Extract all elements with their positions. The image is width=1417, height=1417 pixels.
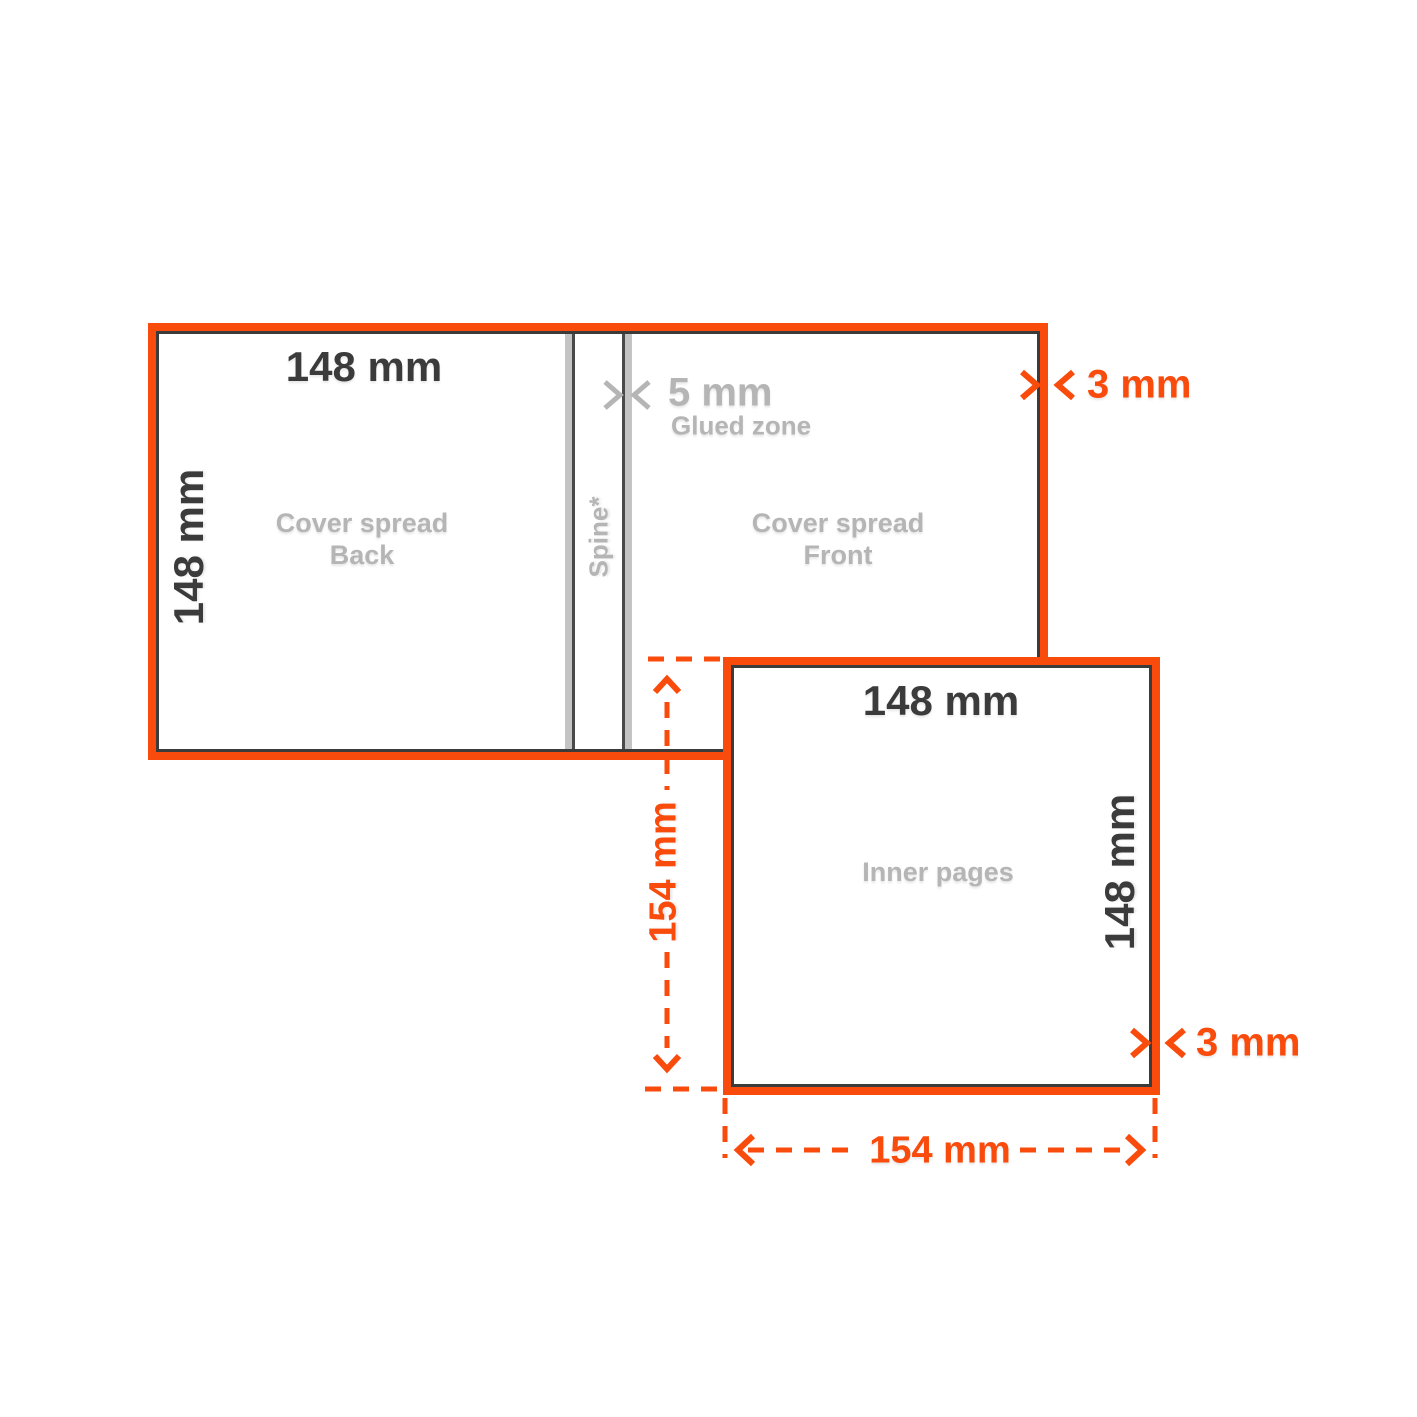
inner-width-label: 148 mm xyxy=(863,677,1019,725)
height-dim-arrow-down-icon xyxy=(655,1056,679,1069)
total-height-label: 154 mm xyxy=(643,801,686,943)
cover-back-label-line2: Back xyxy=(276,540,449,572)
spine-label: Spine* xyxy=(584,497,615,578)
cover-back-label: Cover spread Back xyxy=(276,508,449,572)
spine-fold-bar-left xyxy=(565,334,575,749)
cover-height-label: 148 mm xyxy=(165,469,213,625)
glued-zone-value: 5 mm xyxy=(668,371,773,416)
print-spec-diagram: 148 mm 148 mm Cover spread Back Cover sp… xyxy=(0,0,1417,1417)
inner-height-label: 148 mm xyxy=(1096,794,1144,950)
inner-bleed-label: 3 mm xyxy=(1196,1021,1301,1066)
spine-fold-bar-right xyxy=(622,334,632,749)
inner-bleed-chevron-left-icon xyxy=(1169,1030,1184,1056)
width-dim-arrow-left-icon xyxy=(738,1136,753,1164)
cover-back-label-line1: Cover spread xyxy=(276,508,449,540)
width-dim-arrow-right-icon xyxy=(1127,1136,1142,1164)
cover-bleed-label: 3 mm xyxy=(1087,363,1192,408)
glued-zone-label: Glued zone xyxy=(671,411,811,442)
inner-pages-label: Inner pages xyxy=(862,857,1014,889)
cover-front-label-line1: Cover spread xyxy=(752,508,925,540)
cover-front-label: Cover spread Front xyxy=(752,508,925,572)
total-width-label: 154 mm xyxy=(869,1130,1011,1173)
cover-front-label-line2: Front xyxy=(752,540,925,572)
cover-width-label: 148 mm xyxy=(286,343,442,391)
cover-bleed-chevron-left-icon xyxy=(1058,372,1073,398)
